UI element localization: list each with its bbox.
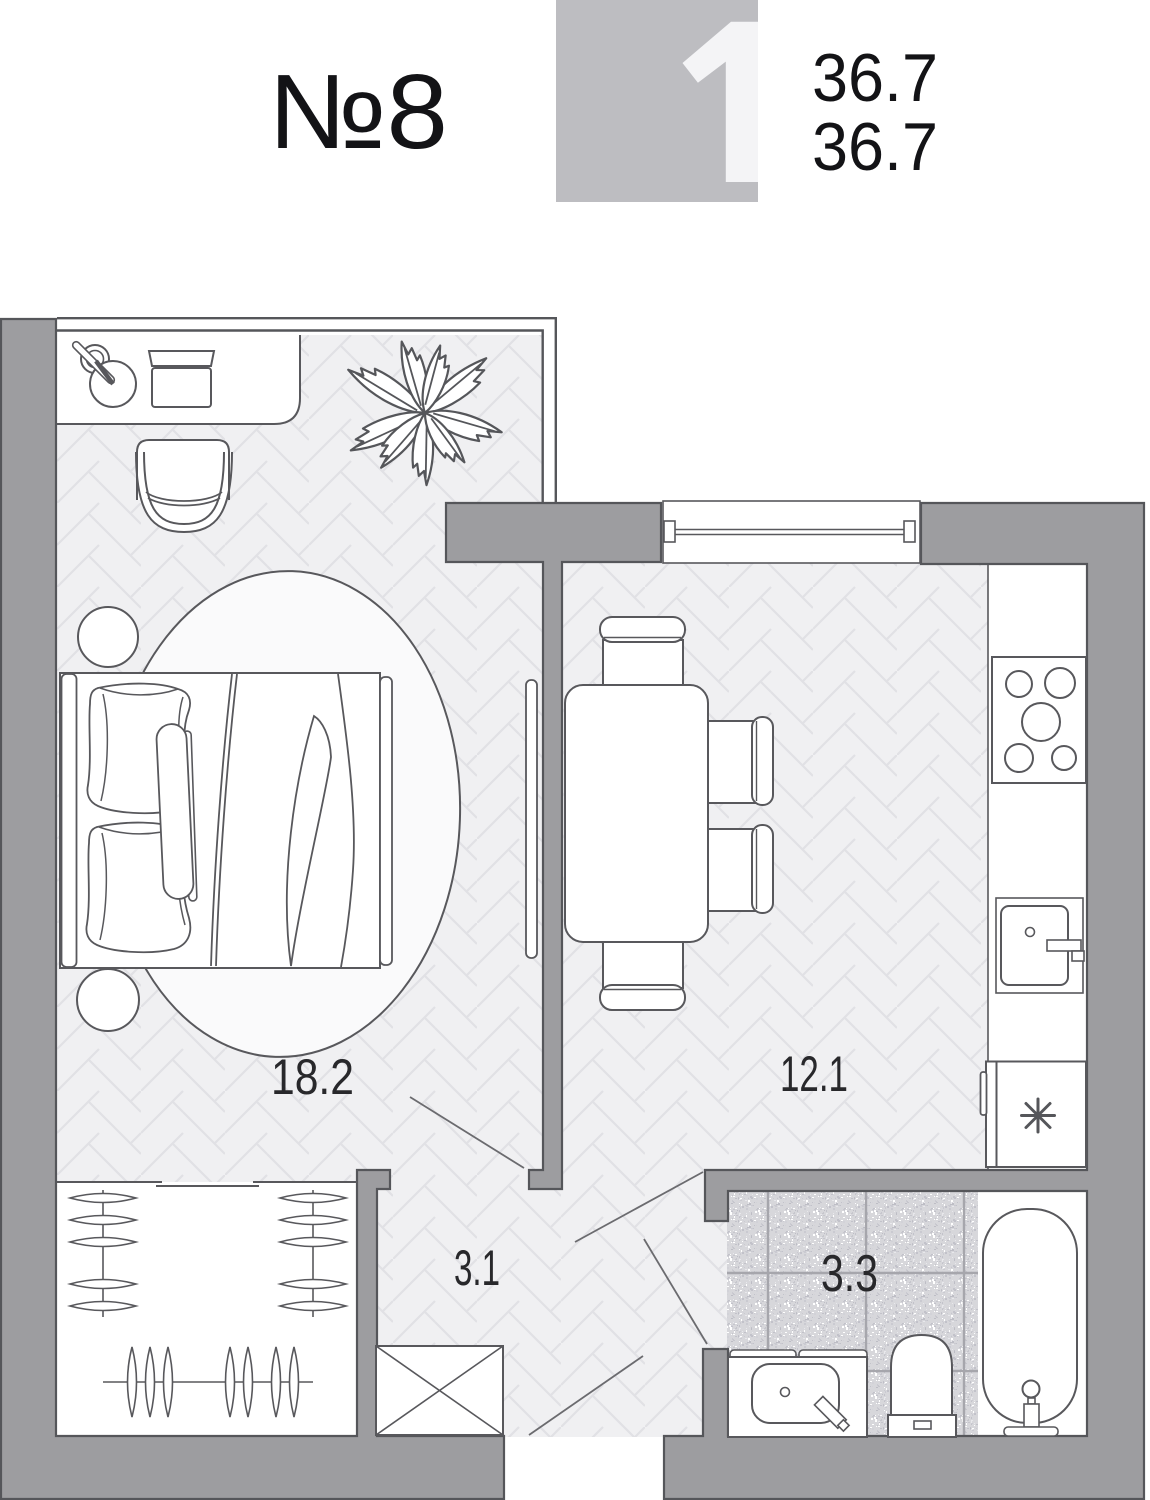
svg-text:18.2: 18.2	[271, 1049, 354, 1105]
svg-text:12.1: 12.1	[780, 1046, 848, 1102]
svg-text:36.7: 36.7	[812, 109, 938, 185]
svg-text:3.1: 3.1	[454, 1240, 500, 1296]
svg-text:3.3: 3.3	[821, 1245, 878, 1303]
svg-text:№8: №8	[268, 53, 448, 171]
svg-text:36.7: 36.7	[812, 40, 938, 116]
